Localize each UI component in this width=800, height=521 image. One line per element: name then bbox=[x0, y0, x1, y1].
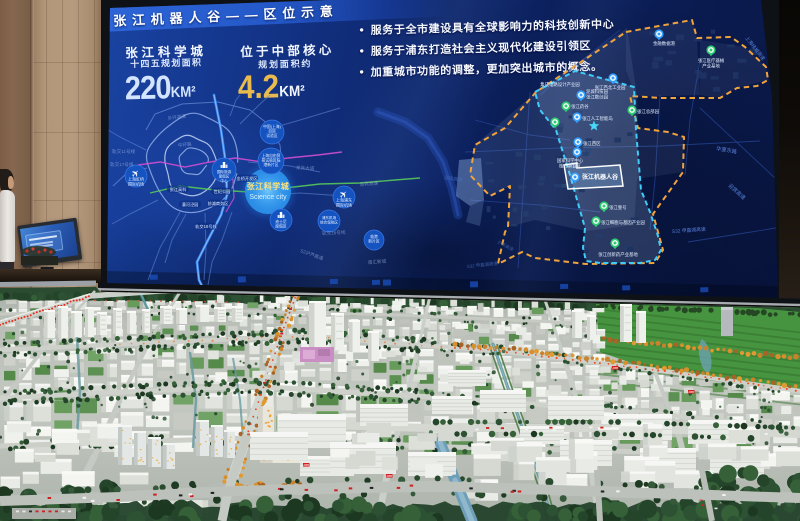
svg-text:ABB: ABB bbox=[612, 366, 618, 370]
svg-text:ABB: ABB bbox=[386, 474, 392, 478]
svg-text:ABB: ABB bbox=[688, 390, 694, 394]
svg-text:ABB: ABB bbox=[303, 463, 309, 467]
